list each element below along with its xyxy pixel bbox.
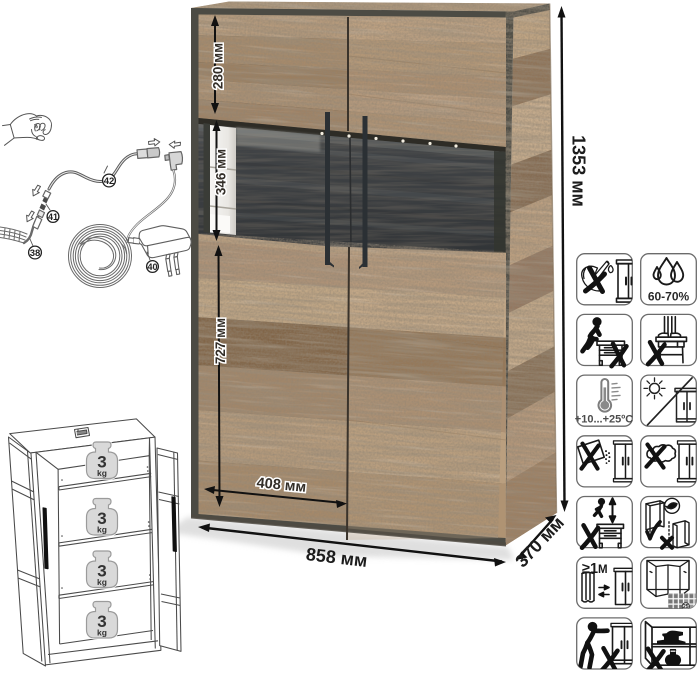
svg-text:60-70%: 60-70% xyxy=(648,290,690,304)
svg-text:+10...+25ºC: +10...+25ºC xyxy=(575,413,634,425)
svg-text:38: 38 xyxy=(30,248,41,259)
svg-text:kg: kg xyxy=(97,577,107,587)
svg-text:42: 42 xyxy=(104,176,115,187)
svg-text:346 мм: 346 мм xyxy=(214,149,229,195)
svg-text:727 мм: 727 мм xyxy=(213,318,228,364)
svg-text:40: 40 xyxy=(147,262,157,272)
svg-text:25: 25 xyxy=(683,604,689,610)
svg-text:1353 мм: 1353 мм xyxy=(569,135,589,207)
svg-text:kg: kg xyxy=(97,628,107,638)
svg-text:kg: kg xyxy=(97,525,107,535)
svg-text:280 мм: 280 мм xyxy=(211,43,226,89)
svg-text:kg: kg xyxy=(97,468,107,478)
svg-text:41: 41 xyxy=(48,212,58,222)
